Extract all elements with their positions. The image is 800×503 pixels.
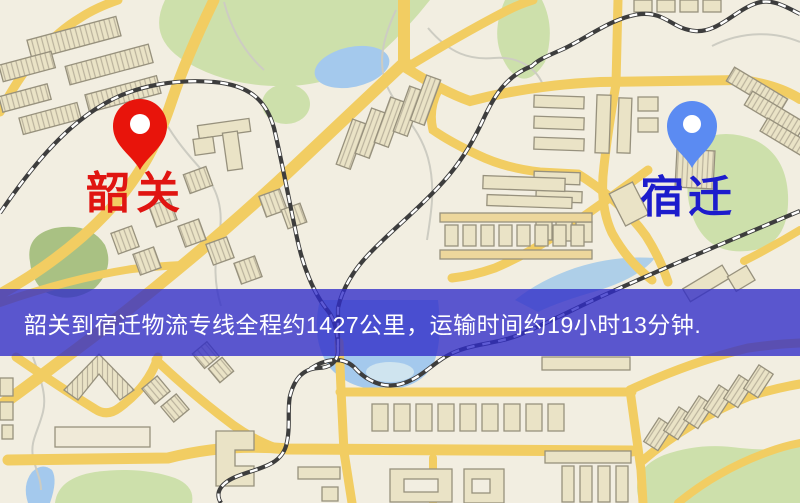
banner-text: 韶关到宿迁物流专线全程约1427公里，运输时间约19小时13分钟. [24,306,701,340]
info-banner: 韶关到宿迁物流专线全程约1427公里，运输时间约19小时13分钟. [0,289,800,356]
map-canvas: 韶关 宿迁 韶关到宿迁物流专线全程约1427公里，运输时间约19小时13分钟. [0,0,800,503]
destination-label: 宿迁 [640,176,736,220]
map-image [0,0,800,503]
origin-label: 韶关 [86,172,186,216]
